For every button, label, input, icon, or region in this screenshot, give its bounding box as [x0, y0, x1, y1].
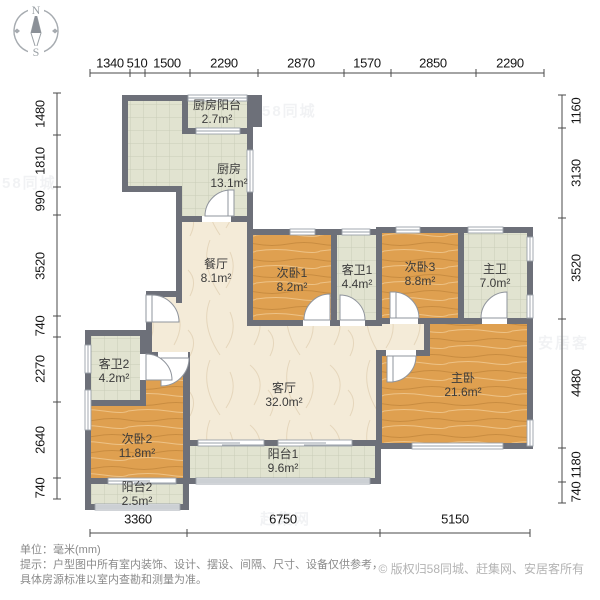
dim-right: 3130	[569, 159, 584, 187]
room-area: 4.2m²	[99, 371, 130, 385]
room-label-master-bedroom: 主卧 21.6m²	[444, 371, 481, 399]
door-panel	[228, 190, 234, 216]
dim-left: 1810	[33, 147, 48, 175]
watermark-brand: 58同城	[262, 100, 317, 121]
room-area: 4.4m²	[342, 277, 373, 291]
compass-north-label: N	[32, 3, 41, 17]
room-label-balcony1: 阳台1 9.6m²	[268, 447, 299, 475]
room-area: 11.8m²	[119, 446, 155, 460]
room-label-living: 客厅 32.0m²	[265, 381, 302, 409]
watermark-brand: 安居客	[538, 332, 589, 353]
dim-top: 510	[127, 56, 148, 71]
dim-bottom: 3360	[124, 512, 152, 527]
dim-top: 1500	[153, 56, 181, 71]
window	[468, 227, 503, 233]
room-label-bedroom2: 次卧2 11.8m²	[119, 432, 155, 460]
balcony-railing	[196, 478, 370, 484]
room-name: 客厅	[272, 381, 296, 395]
window	[85, 390, 91, 430]
room-label-kitchen: 厨房 13.1m²	[210, 162, 247, 190]
room-name: 主卧	[451, 371, 475, 385]
dim-left: 2640	[33, 426, 48, 454]
dim-top: 1340	[96, 56, 124, 71]
room-label-dining: 餐厅 8.1m²	[201, 257, 232, 285]
door-panel	[387, 356, 393, 382]
hallway-vestibule-fill	[376, 324, 424, 350]
dim-top: 2850	[419, 56, 447, 71]
room-area: 13.1m²	[210, 176, 247, 190]
footer-tip-line1: 提示：户型图中所有室内装饰、设计、摆设、间隔、尺寸、设备仅供参考，	[20, 558, 383, 573]
room-area: 8.8m²	[405, 274, 436, 288]
compass-south-label: S	[33, 45, 40, 59]
watermark-brand: 58同城	[2, 172, 57, 193]
room-area: 8.1m²	[201, 271, 232, 285]
window	[247, 150, 253, 192]
window	[527, 237, 533, 261]
dim-right: 4480	[569, 369, 584, 397]
room-name: 次卧2	[122, 432, 153, 446]
dim-left: 1480	[33, 100, 48, 128]
room-label-bedroom1: 次卧1 8.2m²	[277, 266, 308, 294]
dim-right: 1160	[569, 98, 584, 125]
dim-right: 740	[569, 482, 584, 503]
room-area: 7.0m²	[480, 276, 511, 290]
room-area: 32.0m²	[265, 395, 302, 409]
window	[342, 229, 370, 235]
room-label-bedroom3: 次卧3 8.8m²	[405, 260, 436, 288]
room-area: 21.6m²	[444, 385, 481, 399]
room-name: 阳台1	[268, 447, 299, 461]
window	[290, 229, 315, 235]
footer-notes: 单位：毫米(mm) 提示：户型图中所有室内装饰、设计、摆设、间隔、尺寸、设备仅供…	[20, 543, 383, 588]
dim-left: 3520	[33, 252, 48, 280]
compass: N S	[9, 3, 62, 59]
sliding-door	[198, 440, 264, 446]
room-label-kitchen-balcony: 厨房阳台 2.7m²	[193, 98, 241, 126]
room-name: 客卫2	[99, 357, 130, 371]
dim-top: 1570	[353, 56, 381, 71]
room-label-bath2: 客卫2 4.2m²	[99, 357, 130, 385]
room-name: 主卫	[483, 262, 507, 276]
room-area: 9.6m²	[268, 461, 299, 475]
room-name: 阳台2	[122, 480, 153, 494]
room-name: 客卫1	[342, 263, 373, 277]
dim-bottom: 6750	[269, 512, 297, 527]
room-area: 2.7m²	[193, 112, 241, 126]
compass-west-tick	[14, 29, 20, 34]
dim-left: 740	[33, 316, 48, 337]
footer-tip-line2: 具体房源标准以室内查勘和测量为准。	[20, 573, 383, 588]
room-area: 2.5m²	[122, 494, 153, 508]
dim-top: 2870	[287, 56, 315, 71]
footer-copyright: © 版权归58同城、赶集网、安居客所有	[378, 560, 584, 577]
dim-top: 2290	[210, 56, 238, 71]
window	[412, 443, 503, 449]
door-panel	[390, 292, 396, 318]
footer-unit: 单位：毫米(mm)	[20, 543, 383, 558]
dim-bottom: 5150	[441, 512, 469, 527]
dim-left: 990	[33, 191, 48, 212]
room-name: 厨房阳台	[193, 98, 241, 112]
window	[85, 345, 91, 373]
dim-left: 2270	[33, 355, 48, 383]
dim-right: 1180	[569, 452, 584, 479]
dim-left: 740	[33, 478, 48, 499]
room-label-balcony2: 阳台2 2.5m²	[122, 480, 153, 508]
door-panel	[146, 295, 152, 322]
room-name: 厨房	[217, 162, 241, 176]
sliding-door	[278, 440, 352, 446]
window	[196, 128, 240, 134]
floorplan-page: N S 58同城 58同城 安居客 赶集网 厨房阳台 2.7m² 厨房 13.1…	[0, 0, 600, 600]
window	[527, 295, 533, 318]
compass-east-tick	[52, 29, 58, 34]
room-label-master-bath: 主卫 7.0m²	[480, 262, 511, 290]
window	[396, 227, 420, 233]
window	[527, 420, 533, 446]
room-area: 8.2m²	[277, 280, 308, 294]
dim-top: 2290	[496, 56, 524, 71]
room-name: 餐厅	[204, 257, 228, 271]
room-label-bath1: 客卫1 4.4m²	[342, 263, 373, 291]
room-name: 次卧1	[277, 266, 308, 280]
dim-right: 3520	[569, 254, 584, 282]
room-name: 次卧3	[405, 260, 436, 274]
